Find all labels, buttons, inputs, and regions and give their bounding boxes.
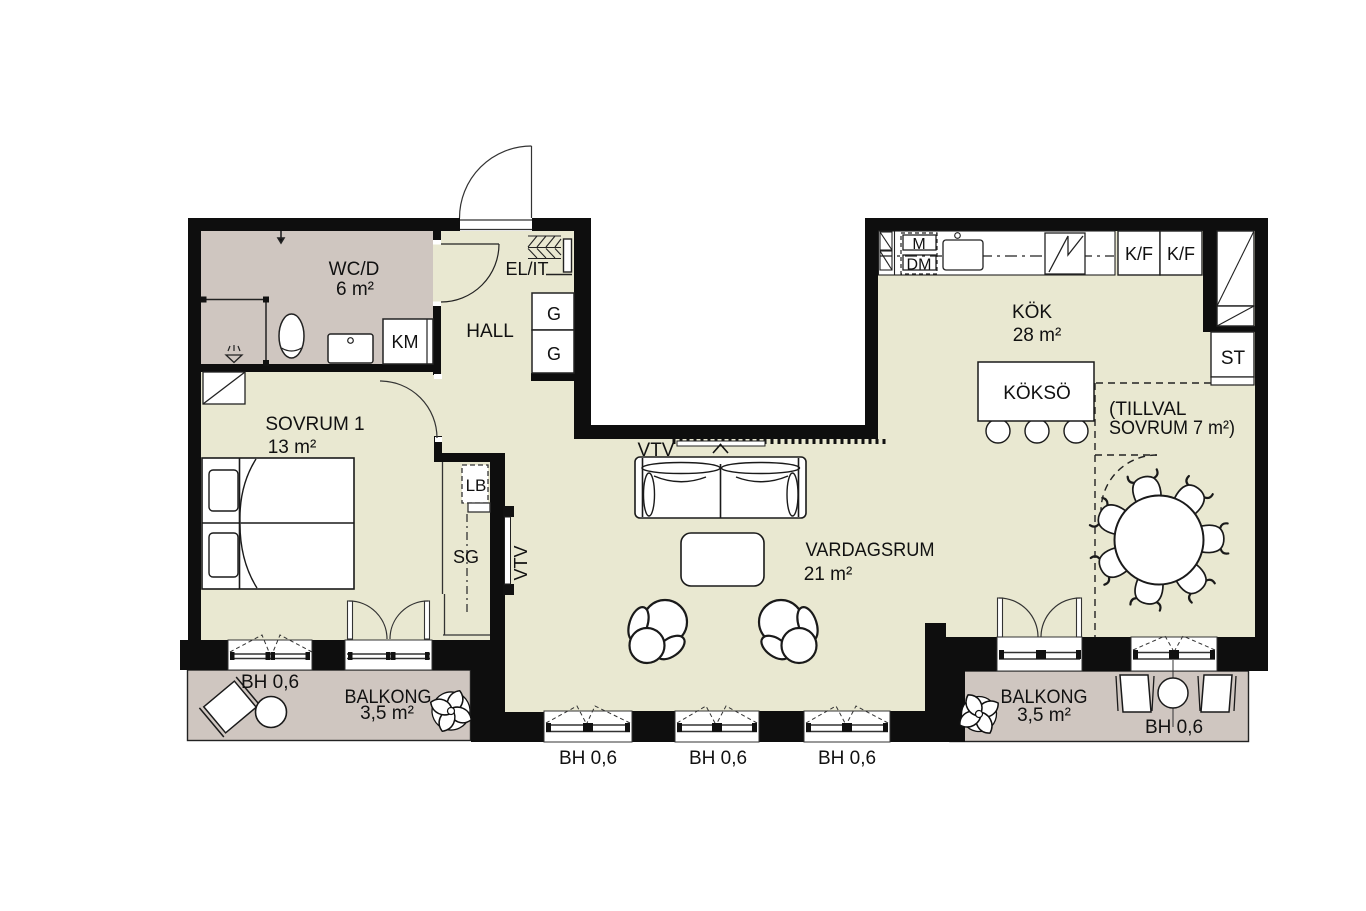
svg-text:VARDAGSRUM: VARDAGSRUM xyxy=(806,540,935,561)
svg-text:VTV: VTV xyxy=(511,545,531,580)
svg-text:KM: KM xyxy=(392,332,419,352)
svg-text:21 m²: 21 m² xyxy=(804,564,853,585)
svg-text:DM: DM xyxy=(907,257,932,274)
svg-text:BH 0,6: BH 0,6 xyxy=(559,748,617,769)
svg-text:LB: LB xyxy=(466,476,487,495)
svg-text:SG: SG xyxy=(453,547,479,567)
svg-text:SOVRUM 1: SOVRUM 1 xyxy=(265,414,364,435)
svg-text:28 m²: 28 m² xyxy=(1013,325,1062,346)
svg-text:G: G xyxy=(547,344,561,364)
svg-text:KÖKSÖ: KÖKSÖ xyxy=(1003,383,1071,404)
svg-text:(TILLVAL: (TILLVAL xyxy=(1109,399,1186,420)
svg-text:6 m²: 6 m² xyxy=(336,279,374,300)
svg-text:BH 0,6: BH 0,6 xyxy=(1145,717,1203,738)
svg-text:13 m²: 13 m² xyxy=(268,437,317,458)
svg-text:K/F: K/F xyxy=(1167,244,1195,264)
svg-text:G: G xyxy=(547,304,561,324)
svg-text:WC/D: WC/D xyxy=(329,259,380,280)
svg-text:M: M xyxy=(912,236,925,253)
svg-text:3,5 m²: 3,5 m² xyxy=(360,703,414,724)
svg-text:K/F: K/F xyxy=(1125,244,1153,264)
svg-text:3,5 m²: 3,5 m² xyxy=(1017,705,1071,726)
svg-text:ST: ST xyxy=(1221,348,1246,369)
svg-text:BH 0,6: BH 0,6 xyxy=(818,748,876,769)
svg-text:SOVRUM 7 m²): SOVRUM 7 m²) xyxy=(1109,418,1235,439)
svg-text:KÖK: KÖK xyxy=(1012,302,1052,323)
svg-text:HALL: HALL xyxy=(466,321,514,342)
svg-text:VTV: VTV xyxy=(638,440,675,461)
svg-text:BH 0,6: BH 0,6 xyxy=(689,748,747,769)
svg-text:EL/IT: EL/IT xyxy=(505,259,548,279)
svg-text:BH 0,6: BH 0,6 xyxy=(241,672,299,693)
